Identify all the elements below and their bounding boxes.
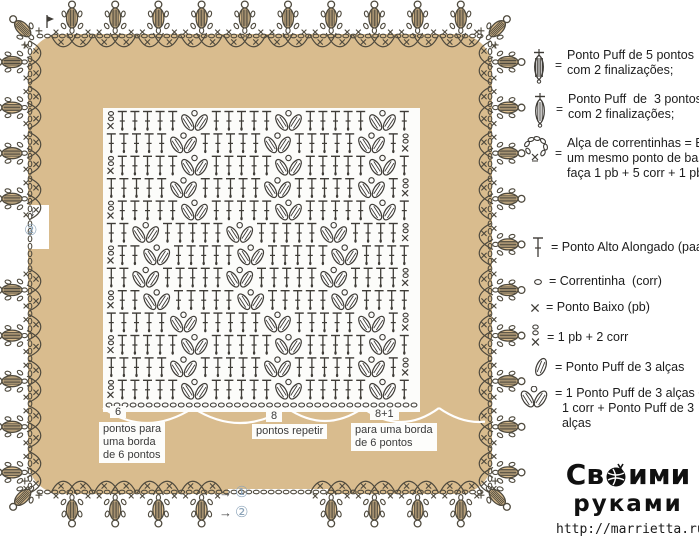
watermark-text: ими <box>628 458 690 491</box>
watermark-text: Св <box>566 458 604 491</box>
repeat-count-6: 6 <box>110 406 126 418</box>
right-arrow-icon: → <box>219 505 232 520</box>
watermark: Св ими руками <box>558 458 698 517</box>
source-url: http://marrietta.ru/ <box>556 522 699 537</box>
circled-2: ② <box>235 503 248 521</box>
yarn-ball-icon <box>604 462 628 488</box>
repeat-label-6: pontos para uma borda de 6 pontos <box>99 422 165 463</box>
repeat-label-8plus1: para uma borda de 6 pontos <box>351 423 437 451</box>
row-direction-1: → ① <box>219 483 248 501</box>
stitch-chart <box>103 108 420 412</box>
repeat-count-8plus1: 8+1 <box>370 408 399 420</box>
start-flag-icon <box>44 14 56 30</box>
watermark-line2: руками <box>558 491 698 517</box>
down-arrow-icon: ↓ <box>29 203 36 219</box>
circled-1: ① <box>235 483 248 501</box>
stitch-chart-symbols <box>103 108 420 412</box>
row-direction-2: → ② <box>219 503 248 521</box>
crochet-pattern-diagram: 6 pontos para uma borda de 6 pontos 8 po… <box>0 0 699 546</box>
circled-2-left: ② <box>24 221 37 239</box>
watermark-line1: Св ими <box>558 458 698 491</box>
right-arrow-icon: → <box>219 485 232 500</box>
repeat-count-8: 8 <box>266 410 282 422</box>
repeat-label-8: pontos repetir <box>252 424 327 439</box>
